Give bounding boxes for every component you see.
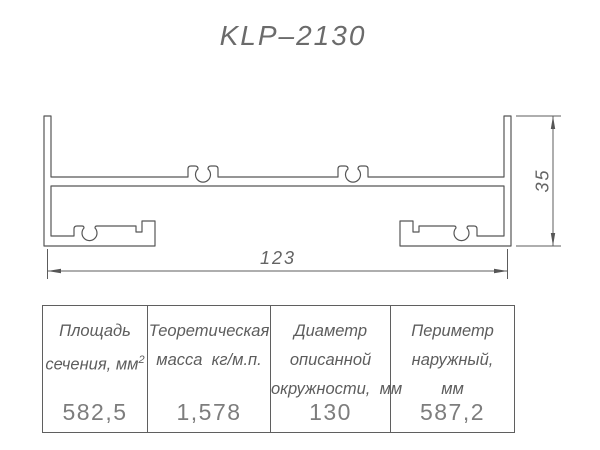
table-value-area: 582,5	[43, 399, 147, 426]
table-cell-area: Площадь сечения, мм2 582,5	[43, 306, 147, 432]
table-header-text: сечения, мм	[45, 356, 138, 374]
table-value-perimeter: 587,2	[391, 399, 514, 426]
table-header-line: Периметр	[391, 317, 514, 346]
height-arrow-bottom	[551, 233, 555, 246]
width-dimension-label: 123	[240, 248, 316, 269]
height-dimension-label: 35	[533, 165, 554, 197]
table-header-line: масса кг/м.п.	[148, 346, 270, 375]
profile-outline	[44, 116, 511, 246]
width-arrow-right	[494, 269, 508, 273]
table-header-line: сечения, мм2	[43, 346, 147, 380]
width-arrow-left	[48, 269, 62, 273]
table-header-line: Теоретическая	[148, 317, 270, 346]
table-header-line: наружный,	[391, 346, 514, 375]
table-header-line: Площадь	[43, 317, 147, 346]
table-cell-mass: Теоретическая масса кг/м.п. 1,578	[147, 306, 270, 432]
table-cell-perimeter: Периметр наружный, мм 587,2	[390, 306, 514, 432]
table-header-line: Диаметр	[271, 317, 390, 346]
height-arrow-top	[551, 116, 555, 129]
superscript-2: 2	[138, 354, 144, 366]
table-value-diameter: 130	[271, 399, 390, 426]
table-cell-diameter: Диаметр описанной окружности, мм 130	[270, 306, 390, 432]
spec-table: Площадь сечения, мм2 582,5 Теоретическая…	[42, 305, 515, 433]
table-value-mass: 1,578	[148, 399, 270, 426]
drawing-canvas: KLP–2130 123 35 Площадь сечения, мм2 582…	[0, 0, 600, 450]
table-header-line: описанной	[271, 346, 390, 375]
